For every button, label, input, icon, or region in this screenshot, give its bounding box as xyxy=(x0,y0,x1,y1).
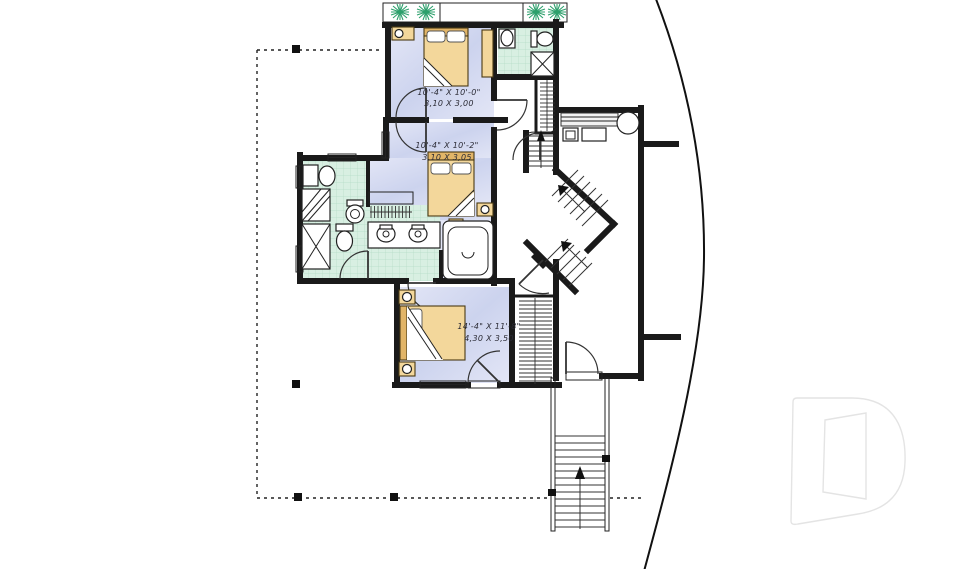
lamp xyxy=(481,206,489,214)
bedroom-middle-dim-imperial: 10'-4" X 10'-2" xyxy=(415,141,478,150)
utility-room xyxy=(561,112,639,141)
exterior-stairs xyxy=(548,378,610,531)
toilet-tank xyxy=(531,31,537,47)
floor-plan-canvas: 10'-4" X 10'-0" 3,10 X 3,00 10'-4" X 10'… xyxy=(0,0,960,569)
counter xyxy=(561,113,618,126)
plant-icon xyxy=(417,4,435,20)
lamp xyxy=(403,293,412,302)
top-deck-planters xyxy=(383,3,567,22)
dresser xyxy=(482,30,493,77)
plant-icon xyxy=(527,4,545,20)
water-heater xyxy=(617,112,639,134)
bedroom-bottom-dim-imperial: 14'-4" X 11'-8" xyxy=(457,322,520,331)
door-entry-exterior xyxy=(566,342,598,374)
headboard xyxy=(400,306,407,360)
sink xyxy=(319,166,335,186)
toilet-bowl xyxy=(537,32,553,46)
up-arrow xyxy=(575,466,585,479)
bedroom-top-dim-imperial: 10'-4" X 10'-0" xyxy=(417,88,480,97)
door-hall-top xyxy=(497,100,527,130)
floor-plan-svg: 10'-4" X 10'-0" 3,10 X 3,00 10'-4" X 10'… xyxy=(0,0,960,569)
pillow xyxy=(431,163,450,174)
deck-post xyxy=(390,493,398,501)
vanity xyxy=(303,165,318,186)
plant-icon xyxy=(391,4,409,20)
deck-post xyxy=(292,380,300,388)
closet-rod-hatch xyxy=(519,298,552,384)
lamp xyxy=(395,30,403,38)
bedroom-middle-dim-metric: 3,10 X 3,05 xyxy=(422,153,472,162)
door-threshold xyxy=(566,372,602,380)
lamp xyxy=(403,365,412,374)
appliance xyxy=(582,128,606,141)
letter-d-watermark-logo xyxy=(791,398,905,524)
pillow xyxy=(452,163,471,174)
deck-post xyxy=(294,493,302,501)
bedroom-bottom-dim-metric: 4,30 X 3,50 xyxy=(464,334,514,343)
pedestal-sink xyxy=(346,205,364,223)
driveway-curve xyxy=(643,0,704,569)
pillow xyxy=(427,31,445,42)
pillow xyxy=(447,31,465,42)
toilet-bowl xyxy=(337,231,353,251)
deck-post xyxy=(292,45,300,53)
linen-closet-hatch xyxy=(540,80,555,131)
plant-icon xyxy=(548,4,566,20)
toilet-tank xyxy=(336,224,353,231)
sink xyxy=(501,30,513,46)
bedroom-top-dim-metric: 3,10 X 3,00 xyxy=(424,99,474,108)
